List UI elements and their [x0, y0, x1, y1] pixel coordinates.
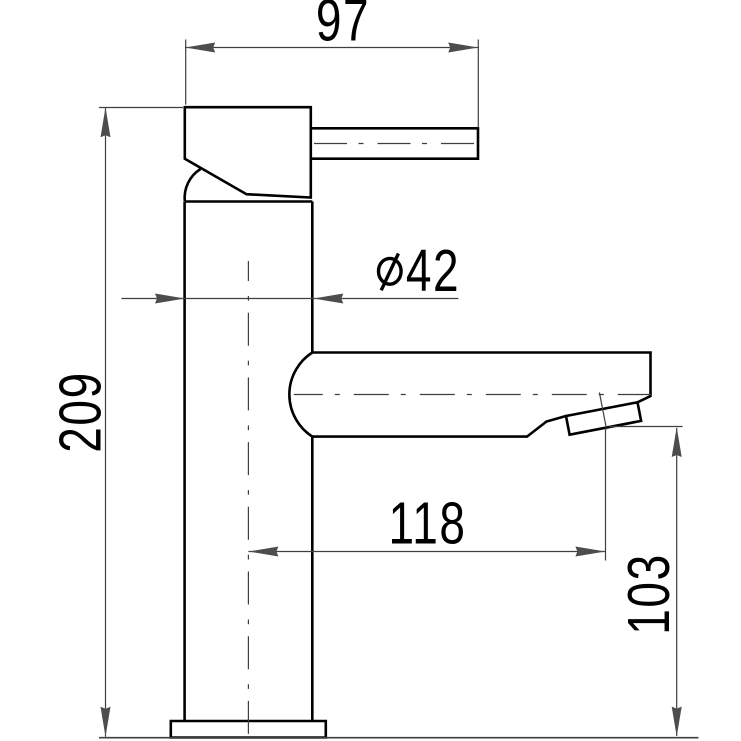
svg-text:209: 209	[48, 371, 114, 452]
svg-text:42: 42	[406, 239, 460, 305]
svg-text:118: 118	[388, 491, 466, 557]
svg-text:97: 97	[316, 0, 370, 54]
svg-text:103: 103	[617, 553, 683, 634]
